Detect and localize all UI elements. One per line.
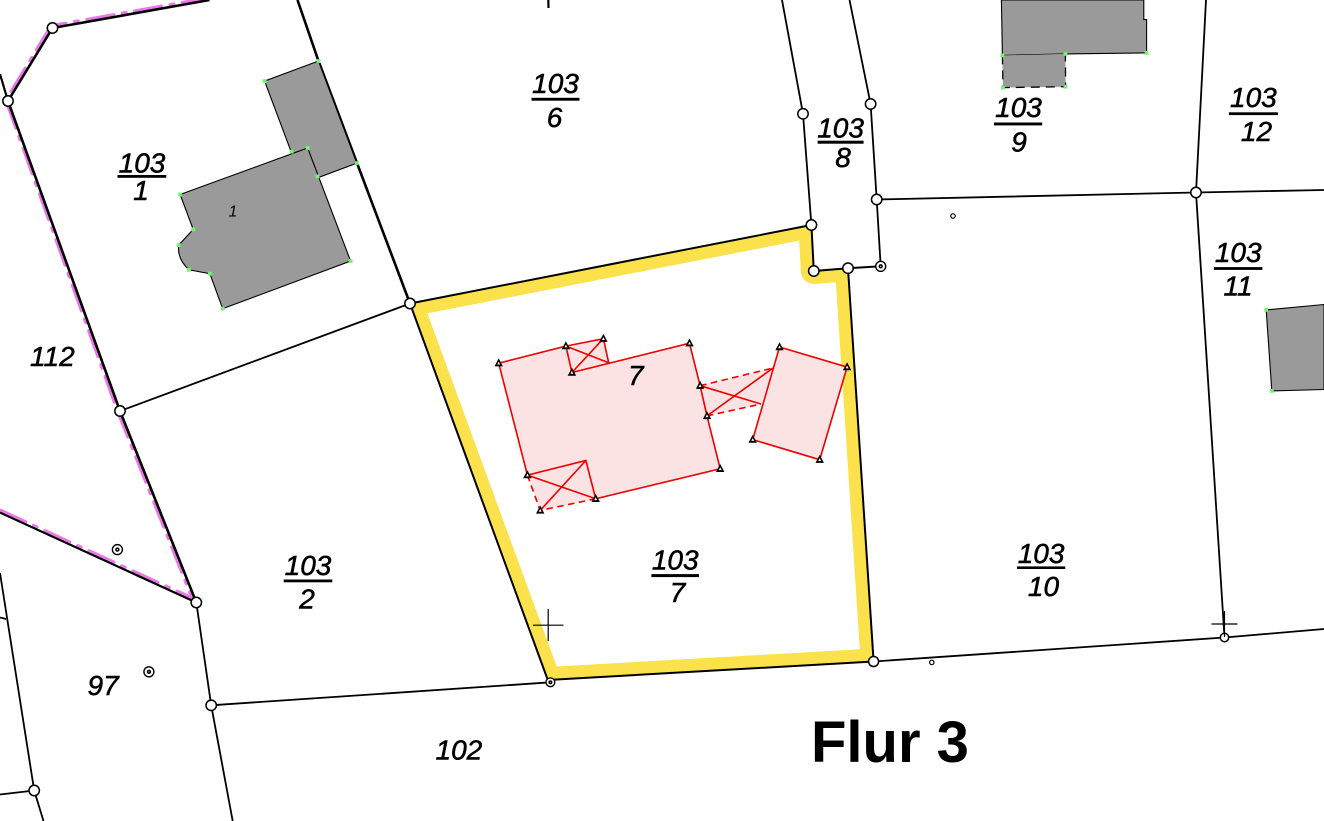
- svg-text:1: 1: [133, 175, 149, 206]
- svg-text:103: 103: [1018, 538, 1065, 569]
- svg-text:6: 6: [547, 102, 563, 133]
- svg-text:103: 103: [285, 550, 332, 581]
- svg-text:7: 7: [628, 360, 645, 391]
- svg-text:103: 103: [1215, 237, 1262, 268]
- svg-text:112: 112: [30, 341, 75, 372]
- svg-text:7: 7: [670, 577, 687, 608]
- svg-text:103: 103: [652, 545, 699, 576]
- svg-text:103: 103: [532, 68, 579, 99]
- svg-text:10: 10: [1028, 571, 1060, 602]
- svg-text:1: 1: [229, 204, 238, 221]
- svg-text:103: 103: [817, 112, 864, 143]
- svg-text:103: 103: [119, 148, 166, 179]
- svg-text:103: 103: [995, 92, 1042, 123]
- svg-text:8: 8: [835, 142, 851, 173]
- svg-text:103: 103: [1230, 82, 1277, 113]
- svg-text:Flur 3: Flur 3: [811, 710, 969, 775]
- svg-text:12: 12: [1241, 116, 1273, 147]
- svg-text:11: 11: [1223, 271, 1252, 302]
- svg-text:97: 97: [88, 670, 121, 701]
- svg-text:102: 102: [436, 735, 483, 766]
- svg-text:2: 2: [298, 584, 315, 615]
- svg-text:9: 9: [1011, 126, 1027, 157]
